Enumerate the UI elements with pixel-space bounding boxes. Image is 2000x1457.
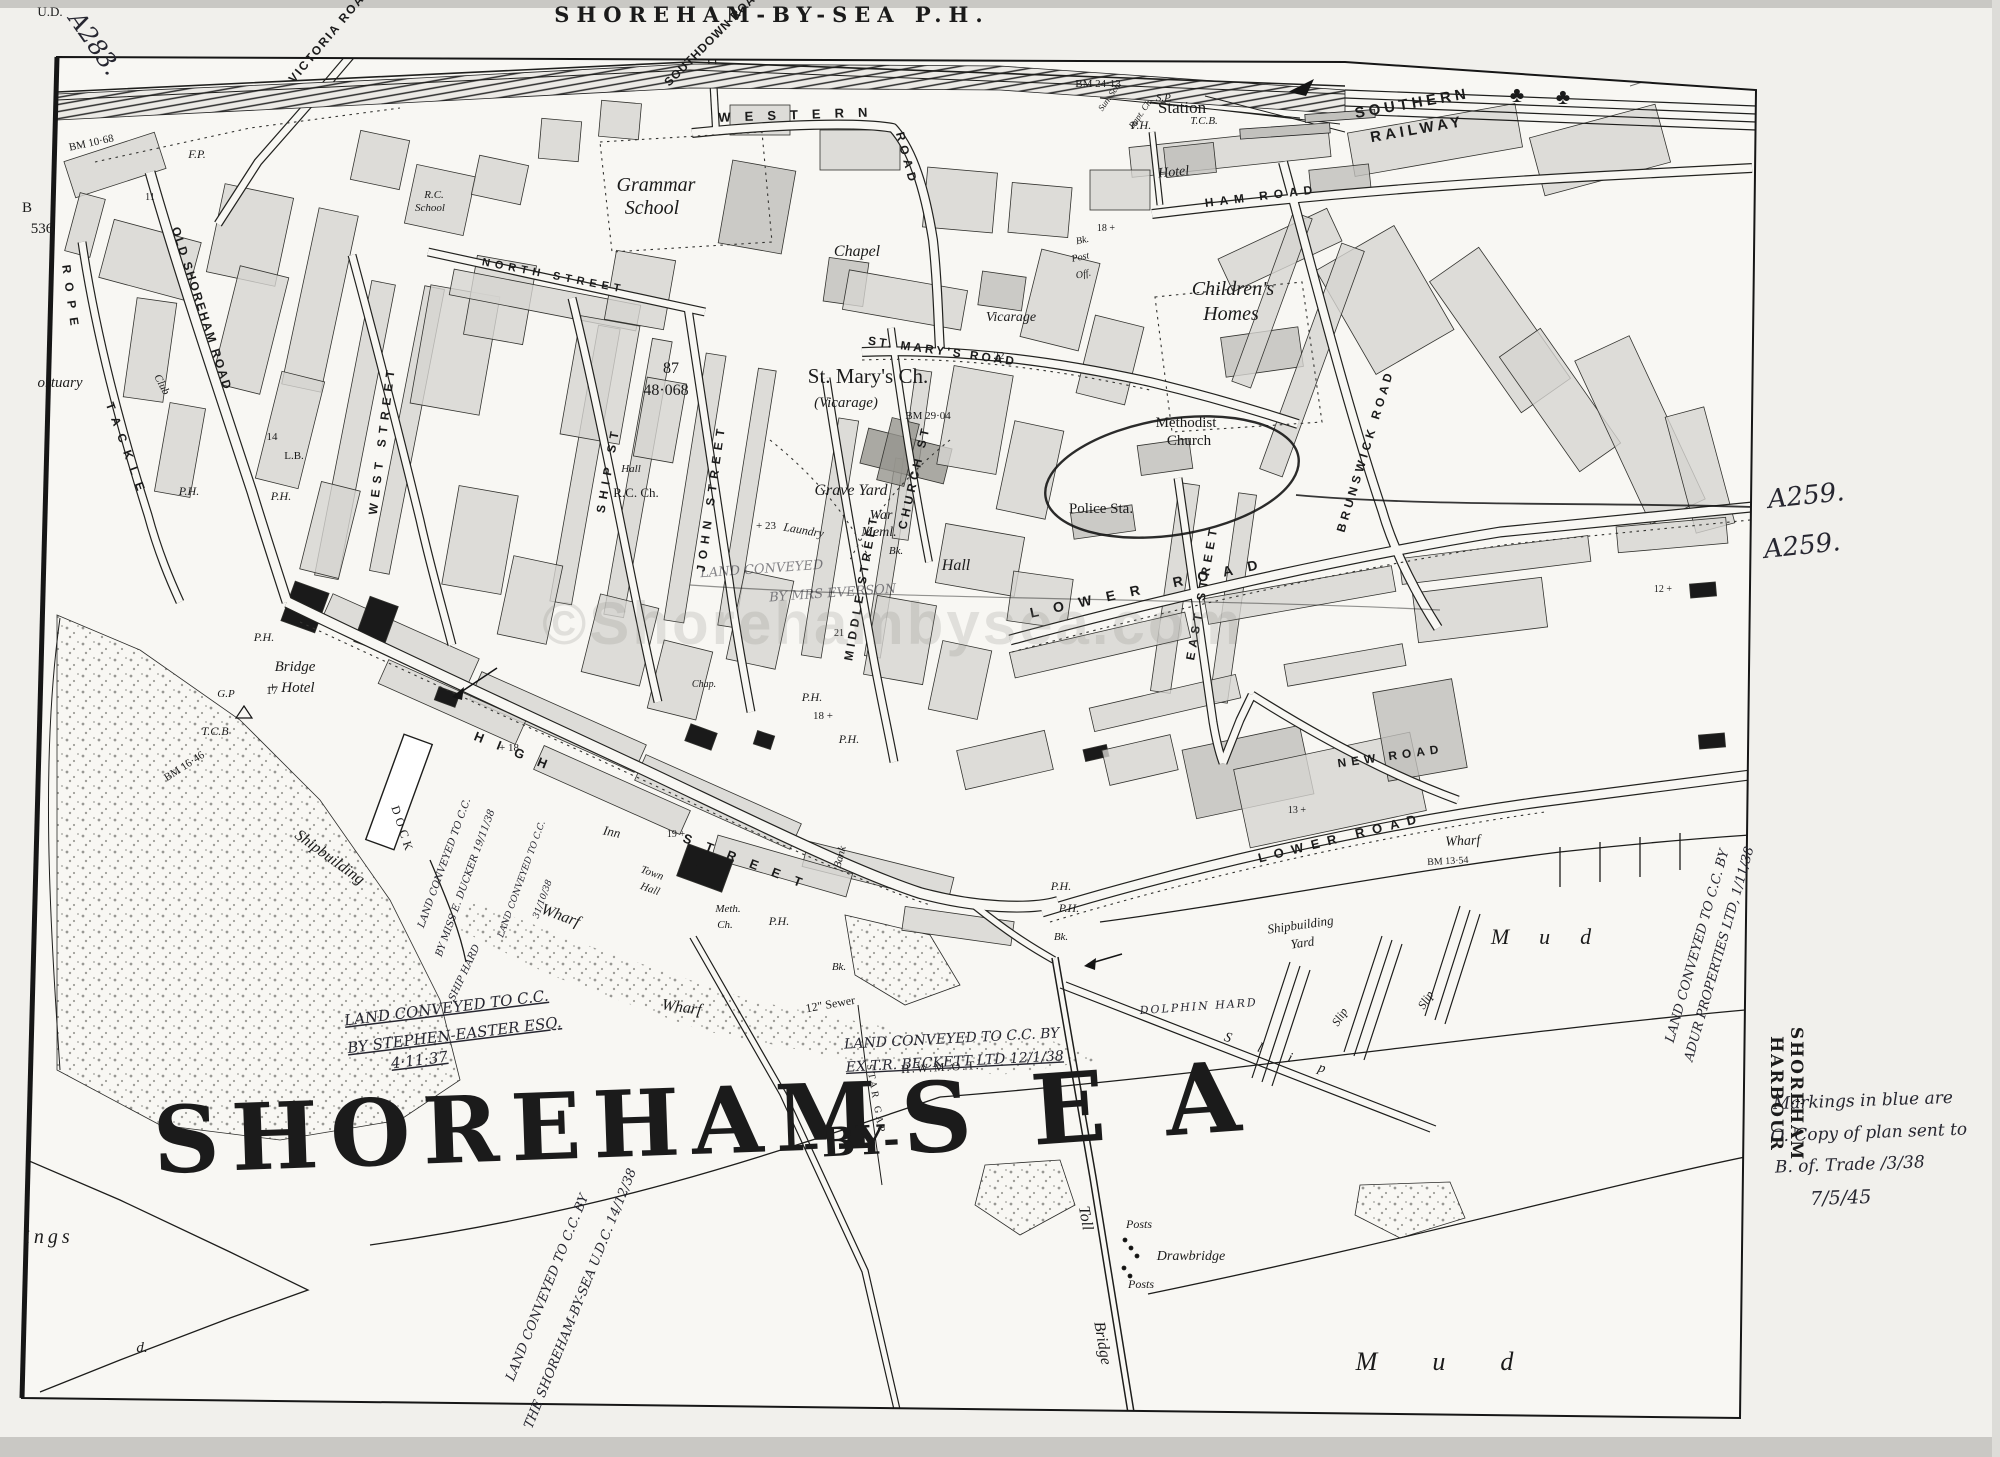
conveyed-building <box>1689 582 1716 598</box>
n18-a: 18 + <box>1097 223 1116 234</box>
ph-c: P.H. <box>801 690 822 704</box>
building-block <box>350 130 409 189</box>
meth-ch-1: Meth. <box>714 903 740 915</box>
title-by: -BY- <box>802 1115 903 1167</box>
lb-b: L.B. <box>691 859 709 870</box>
n18-b: + 18 <box>499 742 519 754</box>
note-blue-4: 7/5/45 <box>1810 1186 1872 1210</box>
ings: ings <box>24 1226 73 1248</box>
tcb-2: T.C.B <box>201 724 229 738</box>
posts-2: Posts <box>1127 1277 1154 1291</box>
sheet-header: SHOREHAM-BY-SEA P.H. <box>554 2 989 27</box>
childrens-homes-2: Homes <box>1202 303 1259 325</box>
ph-e: P.H. <box>768 914 789 928</box>
vicarage: Vicarage <box>986 310 1036 325</box>
b-letter: B <box>22 200 32 216</box>
war-meml-2: Meml. <box>860 525 896 540</box>
methodist-church-2: Church <box>1167 433 1212 449</box>
scanned-map-page: U.D.A283.SHOREHAM-BY-SEA P.H.VICTORIA RO… <box>0 0 2000 1457</box>
ph-left: P.H. <box>178 484 199 498</box>
building-block <box>820 130 900 170</box>
n14: 14 <box>267 431 279 443</box>
meth-ch-2: Ch. <box>717 919 733 931</box>
tcb-station: T.C.B. <box>1190 115 1218 127</box>
building-block <box>1090 170 1150 210</box>
building-block <box>978 271 1026 311</box>
n23: + 23 <box>756 520 776 532</box>
bm-13-54: BM 13·54 <box>1427 855 1469 868</box>
war-meml-1: War <box>870 508 893 523</box>
police-sta: Police Sta. <box>1069 501 1133 517</box>
n12: 12 + <box>1654 584 1673 595</box>
posts-1: Posts <box>1125 1217 1152 1231</box>
n17: 17 <box>266 683 278 697</box>
hall-east: Hall <box>941 557 971 574</box>
grammar-school-1: Grammar <box>617 174 696 196</box>
building-block <box>1008 182 1072 237</box>
rc-school-2: School <box>415 202 445 214</box>
mortuary: ortuary <box>38 375 83 391</box>
n11: 11 <box>145 192 155 203</box>
methodist-church-1: Methodist <box>1156 415 1218 431</box>
fp: F.P. <box>187 147 206 161</box>
hall-rc: Hall <box>620 463 641 475</box>
hotel-ham: Hotel <box>1157 164 1190 182</box>
mud-bottom: Mud <box>1355 1347 1569 1376</box>
tree-icon-2: ♣ <box>1556 84 1570 109</box>
n536: 536 <box>31 221 54 237</box>
n13: 13 + <box>1288 805 1307 816</box>
ph-g: P.H. <box>1058 901 1079 915</box>
shoreham-map: U.D.A283.SHOREHAM-BY-SEA P.H.VICTORIA RO… <box>0 0 2000 1457</box>
n87: 87 <box>663 360 679 377</box>
ph-f: P.H. <box>1050 879 1071 893</box>
mud-right: Mud <box>1490 924 1621 949</box>
shoreham-harbour-2: HARBOUR <box>1766 1036 1786 1152</box>
chap: Chap. <box>692 679 716 690</box>
grammar-school-2: School <box>625 197 680 219</box>
building-block <box>599 100 642 139</box>
ph-d: P.H. <box>838 732 859 746</box>
conveyed-building <box>1698 733 1725 749</box>
ph-a: P.H. <box>270 489 291 503</box>
n19: 19 + <box>667 829 686 840</box>
rc-church: R.C. Ch. <box>613 485 659 500</box>
n48068: 48·068 <box>643 382 688 399</box>
drawbridge: Drawbridge <box>1156 1249 1225 1264</box>
ph-b: P.H. <box>253 630 274 644</box>
n18-c: 18 + <box>813 710 833 722</box>
bk-2: Bk. <box>832 961 846 973</box>
d-label: d. <box>136 1340 147 1356</box>
ud-label: U.D. <box>37 4 62 19</box>
building-block <box>538 118 581 161</box>
bk-war: Bk. <box>889 545 903 557</box>
n22: 22 <box>994 350 1005 362</box>
tree-icon-1: ♣ <box>1510 82 1524 107</box>
childrens-homes-1: Children's <box>1192 278 1275 300</box>
bm-29-04: BM 29·04 <box>905 410 951 422</box>
st-marys-ch: St. Mary's Ch. <box>808 364 928 388</box>
bridge-hotel-1: Bridge <box>275 659 316 675</box>
bk-3: Bk. <box>1054 931 1068 943</box>
shoreham-harbour-1: SHOREHAM <box>1786 1027 1806 1161</box>
lb-a: L.B. <box>284 450 304 462</box>
gp: G.P <box>217 688 235 700</box>
grave-yard: Grave Yard <box>814 482 888 499</box>
wharf-right: Wharf <box>1445 833 1483 850</box>
st-marys-vicarage: (Vicarage) <box>814 395 878 411</box>
chapel: Chapel <box>834 243 881 260</box>
watermark: ©Shorehambysea.com <box>542 590 1244 657</box>
rc-school-1: R.C. <box>423 189 444 201</box>
